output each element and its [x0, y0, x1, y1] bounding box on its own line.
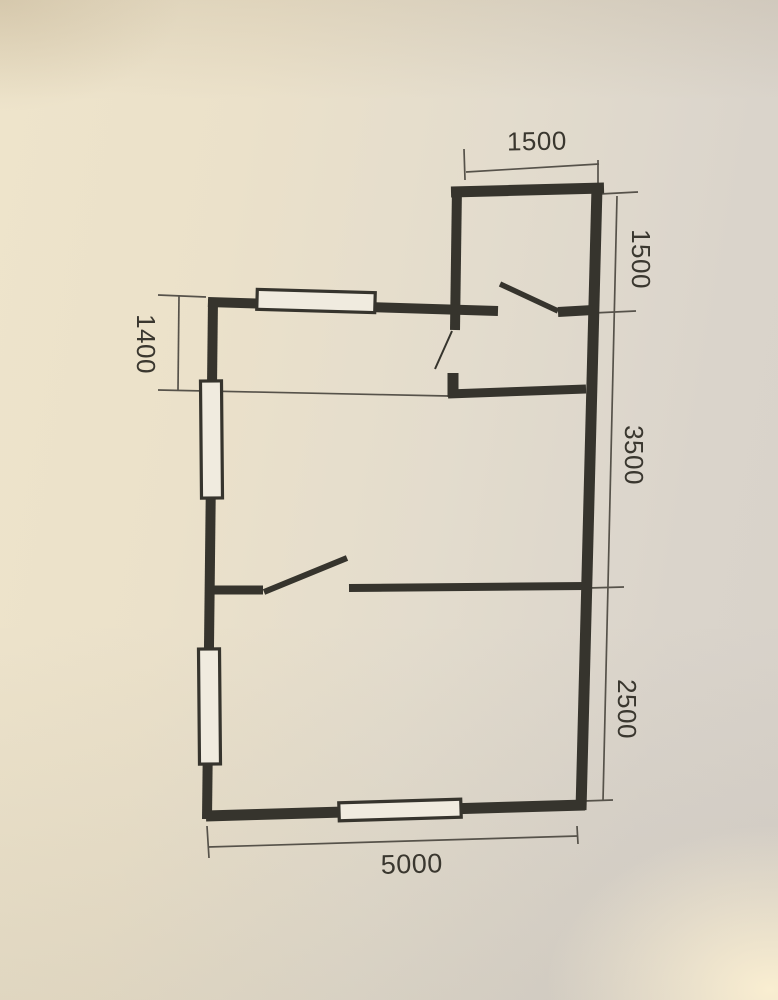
- dim-tick-top-left: [464, 149, 465, 180]
- windows-group: [198, 289, 461, 820]
- dim-label-right-upper: 1500: [626, 229, 656, 289]
- dim-label-bottom-width: 5000: [380, 848, 443, 880]
- hall-door-leaf: [435, 331, 452, 369]
- dim-tick-right-2: [593, 311, 636, 313]
- walls-group: [206, 187, 604, 819]
- dim-label-top-width: 1500: [507, 125, 567, 156]
- dim-line-top: [466, 164, 599, 172]
- dim-label-right-lower: 2500: [612, 679, 642, 739]
- porch-top-wall: [451, 188, 604, 192]
- bottom-wall-window: [339, 799, 461, 821]
- doors-group: [264, 284, 558, 592]
- dim-tick-right-3: [588, 587, 624, 588]
- top-wall-window: [257, 289, 376, 312]
- dim-line-bottom: [208, 836, 578, 847]
- dim-tick-right-1: [600, 192, 638, 194]
- floor-plan-drawing: 1500 1500 3500 2500 1400 5000: [0, 0, 778, 1000]
- left-wall-window-upper: [200, 381, 222, 498]
- dim-tick-right-4: [584, 800, 613, 801]
- right-exterior-wall: [581, 187, 597, 810]
- dim-tick-bottom-left: [207, 826, 209, 858]
- dim-label-left-upper: 1400: [131, 314, 161, 374]
- middle-wall-right-segment: [349, 586, 586, 588]
- main-top-wall-door-jamb: [558, 310, 593, 312]
- dim-tick-bottom-right: [577, 826, 578, 844]
- dim-line-left: [178, 296, 179, 390]
- hall-bottom-wall: [448, 389, 586, 394]
- floor-plan-photo: 1500 1500 3500 2500 1400 5000: [0, 0, 778, 1000]
- left-wall-window-lower: [198, 649, 220, 764]
- dim-tick-left-top: [158, 295, 206, 297]
- dimensions-group: [158, 149, 638, 858]
- middle-door-leaf: [264, 558, 347, 592]
- dim-label-right-middle: 3500: [619, 425, 649, 485]
- entry-door-leaf: [500, 284, 558, 311]
